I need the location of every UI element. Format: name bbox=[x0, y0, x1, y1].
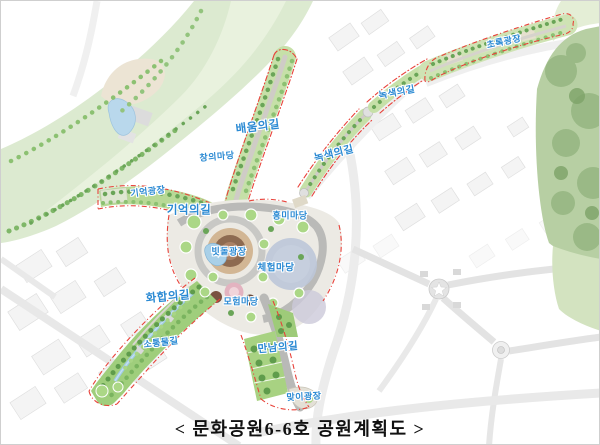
map-caption: < 문화공원6-6호 공원계획도 > bbox=[1, 415, 599, 441]
label-moheom-madang: 모험마당 bbox=[223, 298, 258, 307]
label-heungmi-madang: 흥미마당 bbox=[272, 212, 307, 221]
park-plan-map: 초록광장 녹색의길 녹색의길 배움의길 창의마당 기억광장 기억의길 흥미마당 … bbox=[0, 0, 600, 445]
label-maji-plaza: 맞이광장 bbox=[286, 392, 322, 403]
label-cheheom-madang: 체험마당 bbox=[258, 263, 295, 273]
label-gieok-path: 기억의길 bbox=[167, 205, 211, 217]
map-canvas bbox=[1, 1, 600, 445]
circle-roundabout bbox=[493, 342, 510, 359]
star-roundabout bbox=[420, 269, 461, 310]
label-bitdol-plaza: 빗돌광장 bbox=[211, 248, 246, 257]
